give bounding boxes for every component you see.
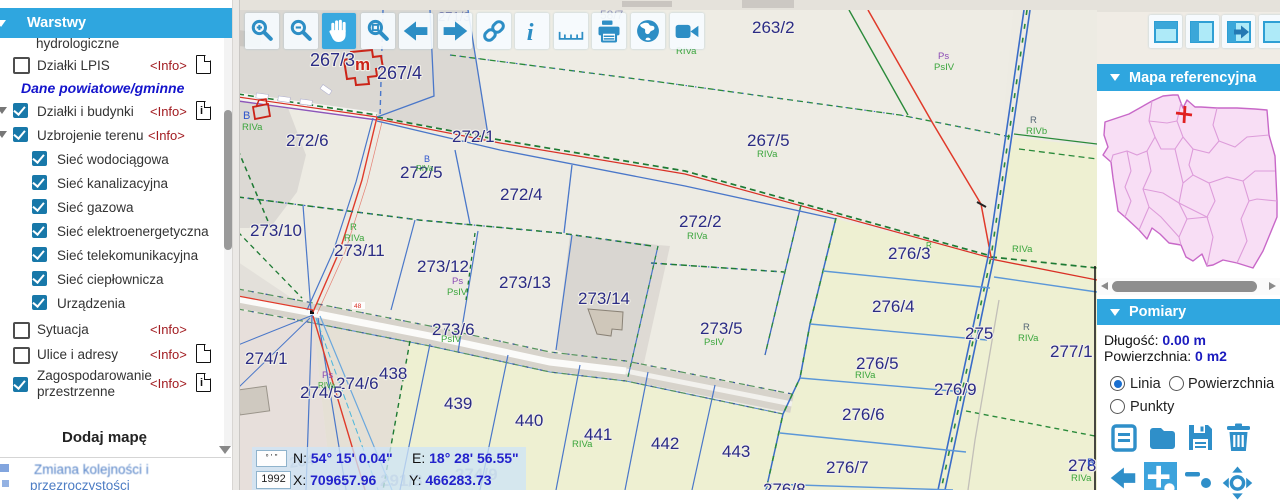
svg-text:275: 275	[965, 324, 993, 343]
svg-text:440: 440	[515, 411, 543, 430]
svg-text:RIVa: RIVa	[1018, 333, 1039, 344]
svg-text:Ps: Ps	[452, 276, 463, 287]
svg-text:B: B	[1087, 457, 1094, 469]
svg-text:PsIV: PsIV	[441, 334, 462, 345]
svg-text:276/8: 276/8	[763, 480, 806, 490]
svg-text:m: m	[355, 55, 370, 74]
svg-text:439: 439	[444, 394, 472, 413]
svg-text:R: R	[1030, 115, 1037, 126]
svg-text:RIVa: RIVa	[344, 233, 365, 244]
svg-text:RIVa: RIVa	[318, 381, 336, 390]
svg-text:263/2: 263/2	[752, 18, 795, 37]
svg-text:R: R	[926, 241, 932, 250]
svg-text:273/13: 273/13	[499, 273, 551, 292]
svg-text:RIVa: RIVa	[1071, 473, 1092, 484]
svg-text:B: B	[243, 110, 250, 122]
svg-text:273/10: 273/10	[250, 221, 302, 240]
svg-text:PsIV: PsIV	[934, 62, 955, 73]
svg-text:RIVb: RIVb	[1026, 126, 1047, 137]
svg-text:273/5: 273/5	[700, 319, 743, 338]
svg-text:RIVa: RIVa	[757, 149, 778, 160]
svg-text:273/12: 273/12	[417, 257, 469, 276]
svg-text:274/1: 274/1	[245, 349, 288, 368]
svg-text:B: B	[424, 154, 430, 164]
svg-text:276/3: 276/3	[888, 244, 931, 263]
svg-text:48: 48	[354, 303, 362, 310]
svg-text:RIVa: RIVa	[855, 370, 876, 381]
svg-text:R: R	[1023, 322, 1030, 333]
svg-text:RIVa: RIVa	[572, 439, 593, 450]
svg-text:267/5: 267/5	[747, 131, 790, 150]
svg-text:Ps: Ps	[938, 51, 949, 62]
svg-text:267/3: 267/3	[310, 50, 355, 70]
svg-text:RIVa: RIVa	[1012, 244, 1033, 255]
svg-text:R: R	[350, 222, 357, 233]
svg-text:272/6: 272/6	[286, 131, 329, 150]
svg-text:277/1: 277/1	[1050, 342, 1093, 361]
svg-text:272/4: 272/4	[500, 185, 543, 204]
svg-text:276/4: 276/4	[872, 297, 915, 316]
svg-text:442: 442	[651, 434, 679, 453]
svg-text:PsIV: PsIV	[447, 287, 468, 298]
svg-text:273/14: 273/14	[578, 289, 630, 308]
svg-text:272/2: 272/2	[679, 212, 722, 231]
svg-text:272/1: 272/1	[452, 127, 495, 146]
svg-text:276/9: 276/9	[934, 380, 977, 399]
svg-text:276/7: 276/7	[826, 458, 869, 477]
svg-text:276/6: 276/6	[842, 405, 885, 424]
svg-text:RIVa: RIVa	[687, 231, 708, 242]
svg-text:PsIV: PsIV	[704, 337, 725, 348]
svg-text:i: i	[527, 19, 534, 45]
svg-text:RIVa: RIVa	[416, 164, 434, 173]
svg-text:RIVa: RIVa	[242, 122, 263, 133]
svg-text:443: 443	[722, 442, 750, 461]
svg-text:Ps: Ps	[322, 370, 333, 381]
svg-text:267/4: 267/4	[377, 63, 422, 83]
svg-text:438: 438	[379, 364, 407, 383]
